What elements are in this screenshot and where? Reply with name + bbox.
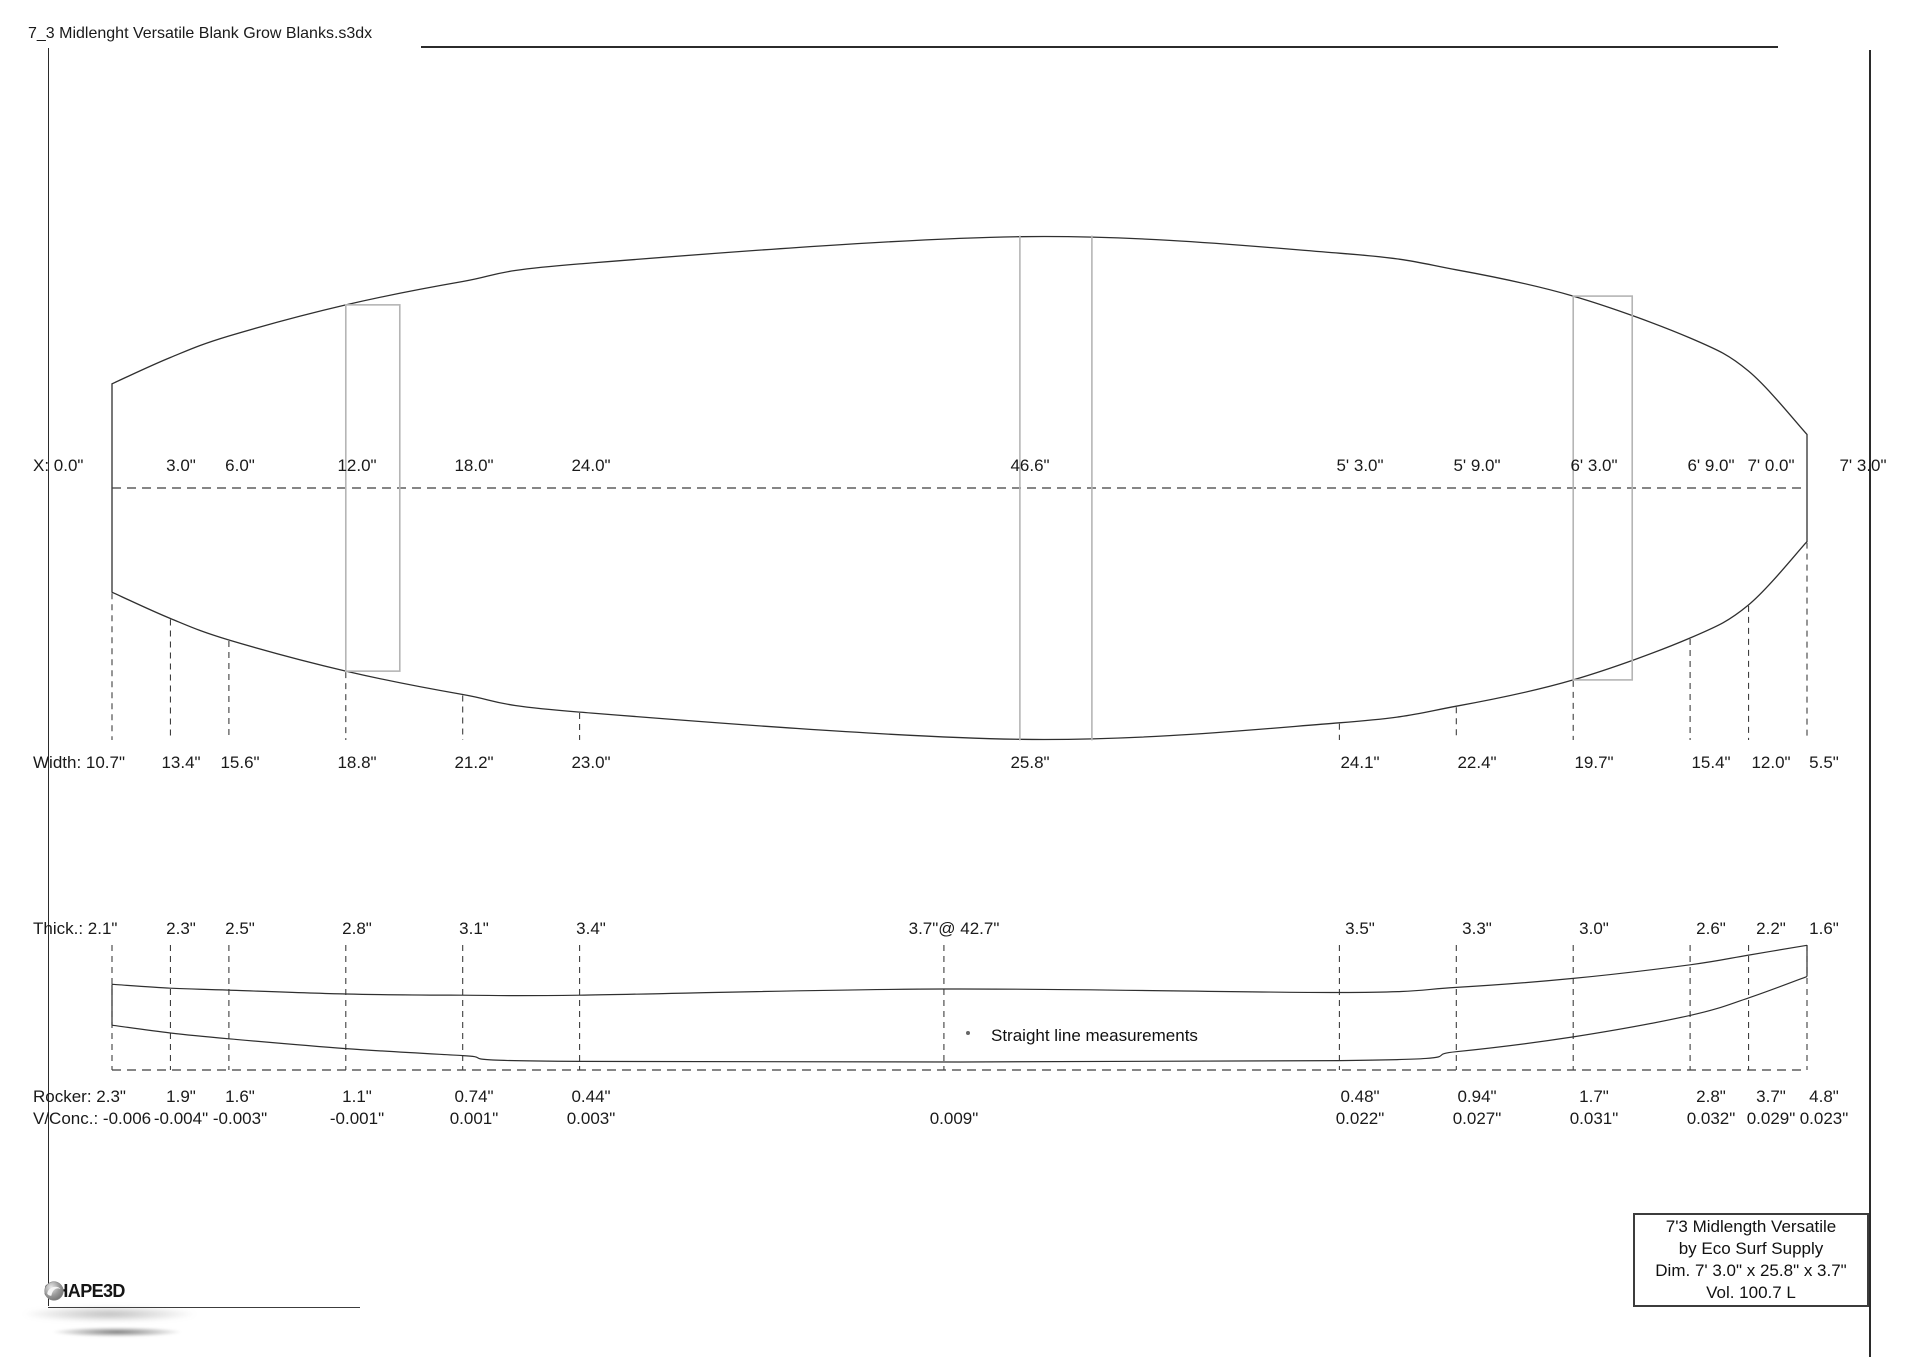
width_row-value: 21.2" <box>454 753 493 773</box>
plan-view-outline <box>112 237 1807 740</box>
vconc_row-value: 0.029" <box>1747 1109 1796 1129</box>
vconc_row-value: -0.001" <box>330 1109 384 1129</box>
rocker_row-value: 1.9" <box>166 1087 196 1107</box>
note-text: Straight line measurements <box>991 1026 1198 1046</box>
vconc_row-value: 0.027" <box>1453 1109 1502 1129</box>
width_row-value: 24.1" <box>1340 753 1379 773</box>
board-brand: by Eco Surf Supply <box>1635 1238 1867 1260</box>
scan-smudge <box>22 1306 197 1322</box>
rocker_row-value: 1.1" <box>342 1087 372 1107</box>
x-positions-row: X: 0.0"3.0"6.0"12.0"18.0"24.0"46.6"5' 3.… <box>0 456 1920 476</box>
thick_row-value: 2.3" <box>166 919 196 939</box>
rocker_row-value: 0.74" <box>454 1087 493 1107</box>
vconc_row-value: -0.003" <box>213 1109 267 1129</box>
x_row-value: 6' 3.0" <box>1570 456 1617 476</box>
width_row-value: 25.8" <box>1010 753 1049 773</box>
rocker_row-value: 0.48" <box>1340 1087 1379 1107</box>
profile-view <box>112 945 1807 1070</box>
x_row-value: 6.0" <box>225 456 255 476</box>
x_row-value: 5' 9.0" <box>1453 456 1500 476</box>
x_row-value: 7' 0.0" <box>1747 456 1794 476</box>
width_row-value: Width: 10.7" <box>33 753 125 773</box>
width_row-value: 22.4" <box>1457 753 1496 773</box>
width_row-value: 12.0" <box>1751 753 1790 773</box>
vconc_row-value: 0.032" <box>1687 1109 1736 1129</box>
rocker_row-value: 4.8" <box>1809 1087 1839 1107</box>
board-name: 7'3 Midlength Versatile <box>1635 1216 1867 1238</box>
width_row-value: 15.4" <box>1691 753 1730 773</box>
thick_row-value: 2.8" <box>342 919 372 939</box>
x_row-value: 7' 3.0" <box>1839 456 1886 476</box>
x_row-value: 6' 9.0" <box>1687 456 1734 476</box>
rocker_row-value: 1.6" <box>225 1087 255 1107</box>
rocker_row-value: 0.44" <box>571 1087 610 1107</box>
thick_row-value: 3.5" <box>1345 919 1375 939</box>
thickness-measurements-row: Thick.: 2.1"2.3"2.5"2.8"3.1"3.4"3.7"@ 42… <box>0 919 1920 939</box>
shape3d-logo: SHAPE3D <box>44 1281 125 1302</box>
rocker_row-value: 0.94" <box>1457 1087 1496 1107</box>
vconc_row-value: -0.004" <box>154 1109 208 1129</box>
rocker_row-value: 1.7" <box>1579 1087 1609 1107</box>
thick_row-value: 2.5" <box>225 919 255 939</box>
thick_row-value: 3.3" <box>1462 919 1492 939</box>
thick_row-value: Thick.: 2.1" <box>33 919 117 939</box>
width-measurements-row: Width: 10.7"13.4"15.6"18.8"21.2"23.0"25.… <box>0 753 1920 773</box>
x_row-value: X: 0.0" <box>33 456 83 476</box>
thick_row-value: 3.7"@ 42.7" <box>909 919 1000 939</box>
rocker_row-value: Rocker: 2.3" <box>33 1087 126 1107</box>
note-bullet-icon <box>966 1031 970 1035</box>
vconc_row-value: 0.031" <box>1570 1109 1619 1129</box>
board-label-box: 7'3 Midlength Versatile by Eco Surf Supp… <box>1633 1213 1869 1307</box>
board-technical-drawing <box>0 0 1920 1357</box>
wave-logo-icon <box>44 1281 64 1301</box>
vconc_row-value: 0.003" <box>567 1109 616 1129</box>
board-volume: Vol. 100.7 L <box>1635 1282 1867 1304</box>
thick_row-value: 1.6" <box>1809 919 1839 939</box>
board-dimensions: Dim. 7' 3.0" x 25.8" x 3.7" <box>1635 1260 1867 1282</box>
thick_row-value: 2.2" <box>1756 919 1786 939</box>
thick_row-value: 3.0" <box>1579 919 1609 939</box>
rocker-measurements-row: Rocker: 2.3"1.9"1.6"1.1"0.74"0.44"0.48"0… <box>0 1087 1920 1107</box>
width_row-value: 23.0" <box>571 753 610 773</box>
x_row-value: 46.6" <box>1010 456 1049 476</box>
vconc_row-value: 0.022" <box>1336 1109 1385 1129</box>
rocker_row-value: 2.8" <box>1696 1087 1726 1107</box>
width_row-value: 5.5" <box>1809 753 1839 773</box>
vconc_row-value: 0.001" <box>450 1109 499 1129</box>
scan-smudge <box>52 1327 182 1337</box>
width_row-value: 19.7" <box>1574 753 1613 773</box>
thick_row-value: 3.1" <box>459 919 489 939</box>
x_row-value: 18.0" <box>454 456 493 476</box>
width_row-value: 13.4" <box>161 753 200 773</box>
vconc_row-value: 0.023" <box>1800 1109 1849 1129</box>
straight-line-note: Straight line measurements <box>966 1026 1198 1046</box>
thick_row-value: 2.6" <box>1696 919 1726 939</box>
vconc_row-value: V/Conc.: -0.006 <box>33 1109 151 1129</box>
thick_row-value: 3.4" <box>576 919 606 939</box>
vconc_row-value: 0.009" <box>930 1109 979 1129</box>
rocker_row-value: 3.7" <box>1756 1087 1786 1107</box>
width_row-value: 18.8" <box>337 753 376 773</box>
print-page: 7_3 Midlenght Versatile Blank Grow Blank… <box>0 0 1920 1357</box>
x_row-value: 3.0" <box>166 456 196 476</box>
title-underline <box>421 46 1778 48</box>
vconc-measurements-row: V/Conc.: -0.006-0.004"-0.003"-0.001"0.00… <box>0 1109 1920 1129</box>
x_row-value: 12.0" <box>337 456 376 476</box>
x_row-value: 24.0" <box>571 456 610 476</box>
x_row-value: 5' 3.0" <box>1336 456 1383 476</box>
width_row-value: 15.6" <box>220 753 259 773</box>
file-title: 7_3 Midlenght Versatile Blank Grow Blank… <box>28 25 372 43</box>
page-border-right <box>1869 50 1871 1357</box>
